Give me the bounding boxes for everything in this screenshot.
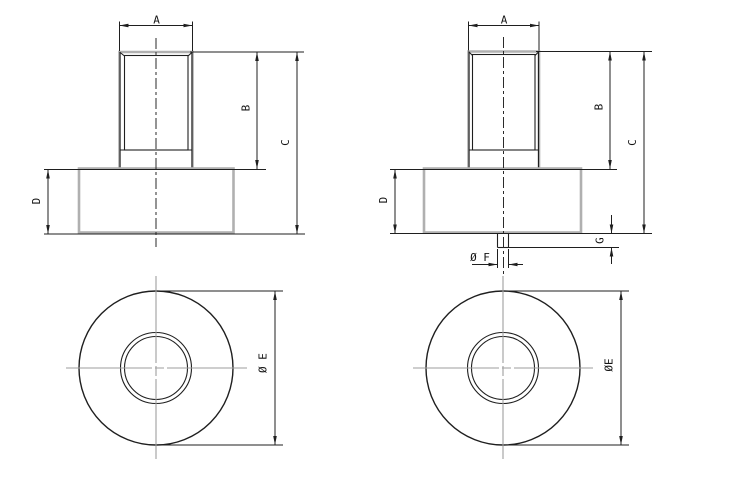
technical-drawing-canvas: A B C D Ø E (0, 0, 743, 480)
dim-label-e: ØE (603, 358, 616, 371)
base-outline (424, 169, 581, 233)
dim-label-b: B (240, 104, 253, 111)
dim-label-e: Ø E (257, 353, 270, 373)
front-view-left: A B C D (30, 14, 305, 248)
dim-label-c: C (626, 139, 639, 146)
top-view-left: Ø E (66, 276, 283, 459)
dim-label-a: A (153, 14, 160, 27)
technical-drawing-page: A B C D Ø E (0, 0, 743, 480)
dim-label-d: D (377, 197, 390, 204)
stud-outline (120, 52, 193, 168)
dim-label-c: C (279, 139, 292, 146)
dim-label-d: D (30, 198, 43, 205)
front-view-right: A B C D G Ø F (377, 14, 652, 278)
top-view-right: ØE (413, 276, 629, 459)
dim-label-a: A (501, 14, 508, 27)
dim-label-g: G (594, 237, 607, 244)
dim-label-b: B (593, 103, 606, 110)
dim-label-f: Ø F (470, 251, 490, 264)
